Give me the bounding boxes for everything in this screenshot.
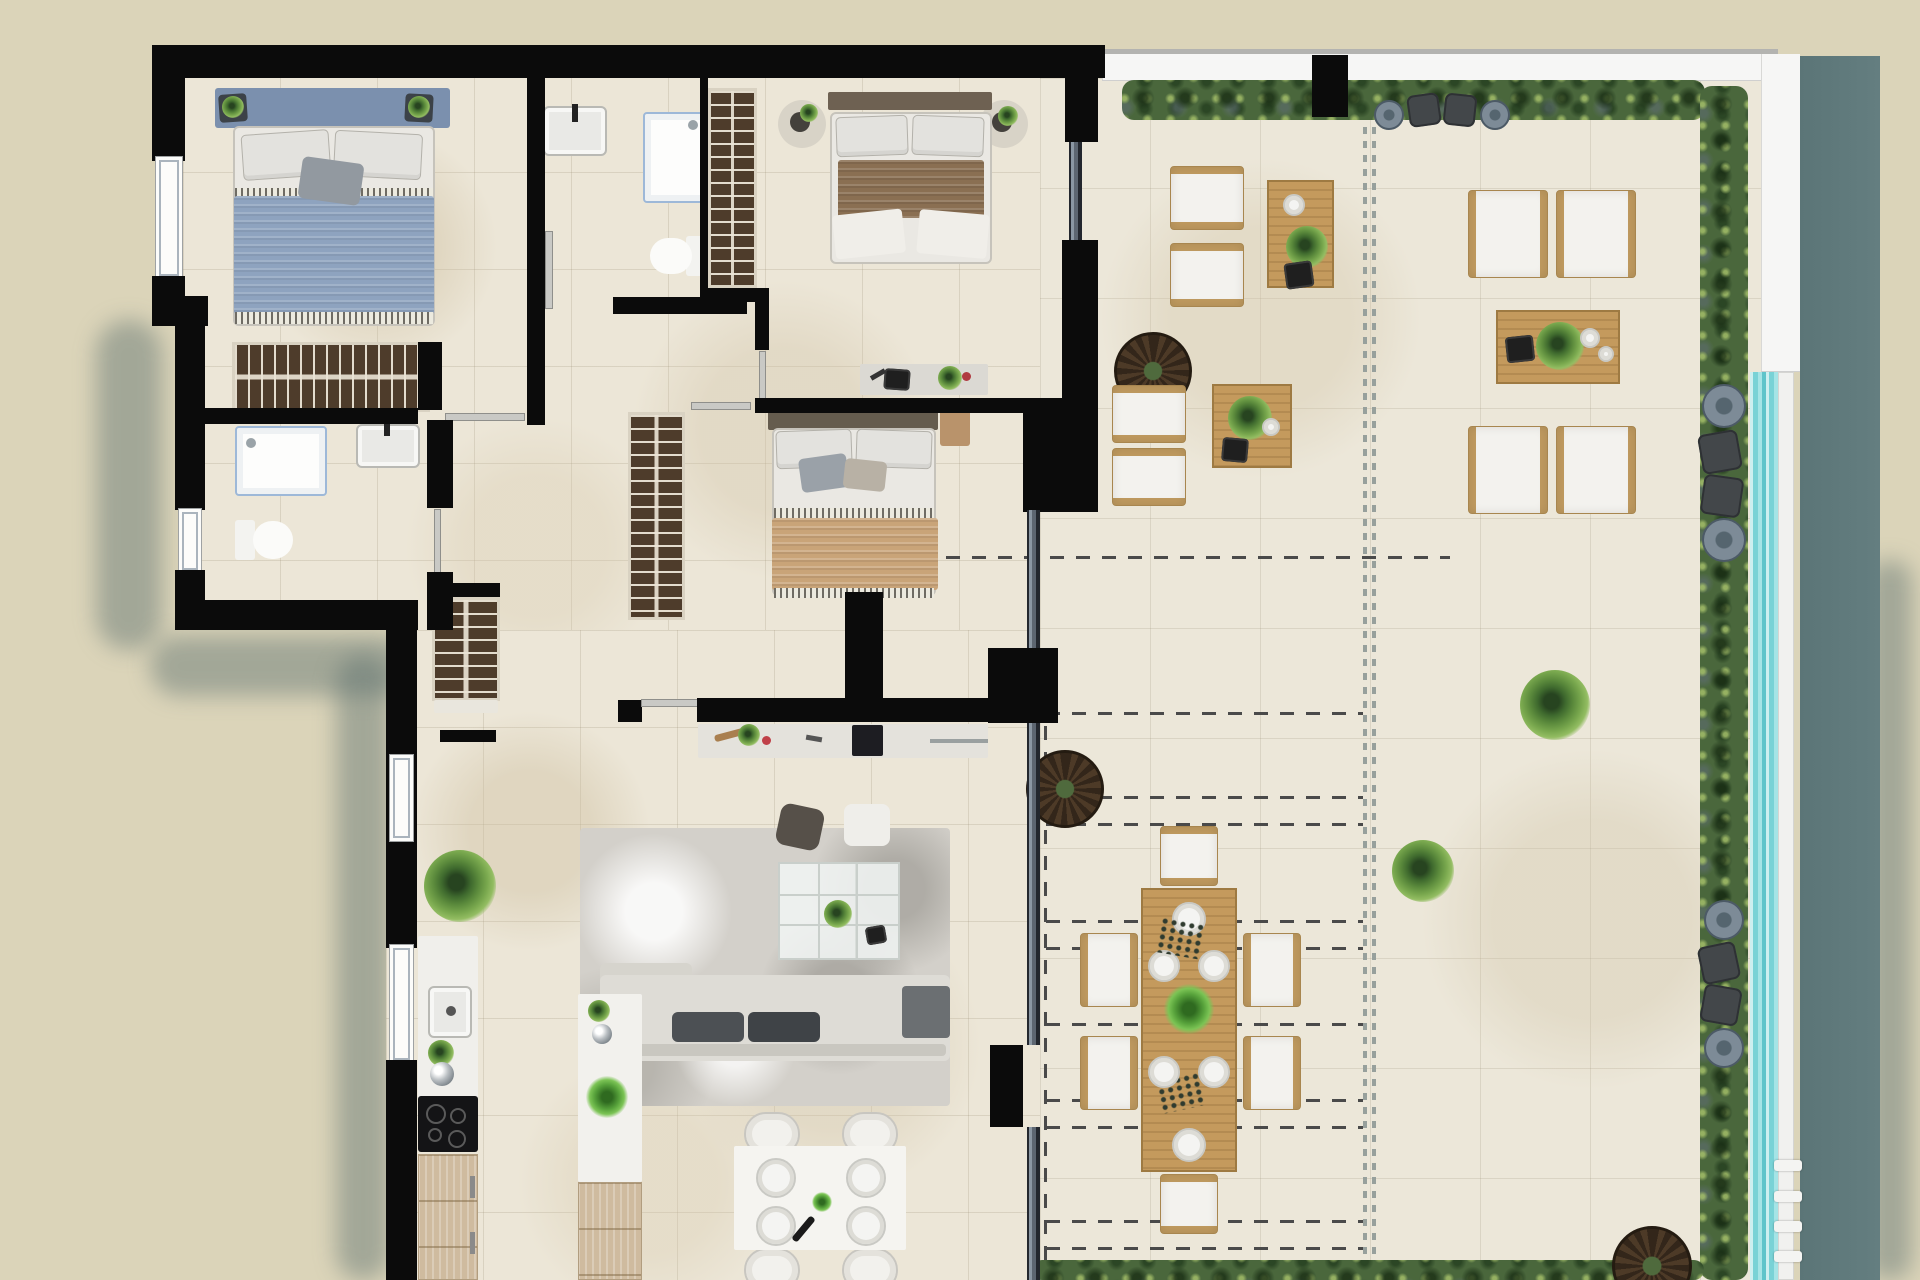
pouf-right-3 [1696,940,1741,985]
terrace-zone-dashed-line [868,556,1450,559]
bathroom1-toilet-bowl [650,238,692,274]
outdoor-dining-chair-bottom [1160,1174,1218,1234]
bed3-nightstand-right [940,410,970,446]
door-leaf-bedroom3 [692,403,750,409]
terrace-armchair-4 [1556,426,1636,514]
pergola-dashed-10 [1046,1247,1363,1250]
window-bedroom1 [155,156,183,280]
dining-plate-4 [846,1206,886,1246]
bed1-bottom-fringe [235,312,433,324]
sofa-cushion-2 [748,1012,820,1042]
living-pouf-white [844,804,890,846]
pool-step-2 [1774,1191,1802,1202]
terrace-plant-1 [1520,670,1590,740]
wall-bedroom2-west [755,288,769,350]
hedge-bottom [1032,1260,1704,1280]
bed2-pillow-right [911,115,984,157]
tv-console-tray [883,368,910,391]
bathroom2-shower-drain [246,438,256,448]
pouf-right-4 [1699,983,1743,1027]
bathroom1-shower-drain [688,120,698,130]
pouf-planter-top-1 [1374,100,1404,130]
table2-cup [1262,418,1280,436]
terrace-armchair-3 [1468,426,1548,514]
pouf-top-2 [1442,92,1477,127]
door-leaf-bedroom1 [446,414,524,420]
building-shadow-left-wall [336,655,390,1280]
dining-plate-2 [846,1158,886,1198]
cabinet-handle-2 [470,1232,475,1254]
kitchen-faucet [446,1006,456,1016]
door-leaf-living [642,700,698,706]
bathroom2-faucet [384,422,390,436]
window-kitchen-2 [389,944,414,1064]
wall-pier-bedroom3 [845,592,883,702]
tv-console-plant [938,366,962,390]
wall-living-north [697,698,988,722]
table3-cup-1 [1580,328,1600,348]
wall-terrace-chunk-b [1062,240,1098,512]
terrace-top-pillar [1312,55,1348,117]
wall-bathroom2-right-upper [427,420,453,508]
terrace-lounge-chair-4 [1112,448,1186,506]
outdoor-dining-chair-left-1 [1080,933,1138,1007]
island-steel-bowl [592,1024,612,1044]
table2-tray [1221,437,1249,463]
table3-cup-2 [1598,346,1614,362]
window-bathroom2 [178,508,202,574]
pouf-right-2 [1699,473,1744,518]
bed3-headboard [768,410,938,430]
wall-terrace-pier-2 [990,1045,1023,1127]
terrace-armchair-1 [1468,190,1548,278]
hob-burner-1 [426,1104,446,1124]
hob-burner-3 [428,1128,442,1142]
pouf-planter-right-2 [1702,518,1746,562]
outdoor-plate-bottom [1172,1128,1206,1162]
wall-top [155,45,1105,78]
terrace-lounge-chair-3 [1112,385,1186,443]
wall-terrace-chunk-a [1065,75,1098,142]
wall-bedroom1-right [527,45,545,425]
outdoor-dining-chair-top [1160,826,1218,886]
floor-plan-canvas [0,0,1920,1280]
door-leaf-bedroom2 [760,352,765,400]
wardrobe-top-center [708,88,757,288]
wall-kitchen-west-lower [386,1060,417,1280]
wall-closet-south-stub [440,730,496,742]
terrace-divider-dotted-a [1363,85,1367,1280]
terrace-lounge-chair-2 [1170,243,1244,307]
wall-bedroom1-left-upper [152,45,185,161]
wall-hall-chunk [418,342,442,410]
kitchen-hob [418,1096,478,1152]
bed2-sheet-fold-left [832,208,906,259]
pouf-planter-right-4 [1704,1028,1744,1068]
bathroom2-toilet-tank [235,520,255,560]
wall-bottom-left [175,600,418,630]
hedge-right [1700,86,1748,1280]
outdoor-herbs-1 [1155,916,1205,959]
wall-bedroom2-bedroom3 [755,398,1068,413]
kitchen-island-wood [578,1182,642,1280]
bed3-blanket [772,518,938,590]
sideboard-rail [930,739,988,743]
bed2-blanket [838,160,984,218]
sideboard-red-deco [762,736,771,745]
hob-burner-4 [448,1130,466,1148]
bathroom1-faucet [572,104,578,122]
wall-wardrobe-left [700,78,708,290]
outdoor-center-plant [1164,984,1214,1034]
outdoor-dining-chair-right-1 [1243,933,1301,1007]
bathroom2-shower [235,426,327,496]
dining-plate-3 [756,1206,796,1246]
kitchen-floor-plant [424,850,496,922]
sliding-door-living-1 [1027,723,1040,1045]
bathroom2-toilet-bowl [253,521,293,559]
bed3-throw-gray [798,453,850,493]
terrace-armchair-2 [1556,190,1636,278]
table3-tray [1505,335,1536,364]
terrace-plant-2 [1392,840,1454,902]
coffee-table-tray [865,924,888,945]
bed2-plant-left [800,104,818,122]
terrace-right-walkway [1761,54,1800,372]
bed2-plant-right [998,106,1018,126]
table3-plant [1536,322,1584,370]
hall-closet-cap [434,700,498,713]
wall-living-north-stub [618,700,642,722]
sofa-cushion-1 [672,1012,744,1042]
wall-bathroom2-right-lower [427,572,453,630]
bed1-blanket [234,196,434,314]
terrace-divider-dotted-b [1372,85,1376,1280]
bed2-headboard [828,92,992,110]
dining-chair-4 [842,1248,898,1280]
outdoor-dining-chair-right-2 [1243,1036,1301,1110]
door-leaf-bathroom1 [546,232,552,308]
bed2-pillow-left [835,115,908,157]
wall-bedroom1-south [205,408,418,424]
wall-wardrobe-south [700,288,757,302]
dining-plate-1 [756,1158,796,1198]
bed1-plant-right [408,96,430,118]
island-lettuce [586,1076,628,1118]
living-pouf-dark [774,802,826,852]
outdoor-plate-right-1 [1198,950,1230,982]
window-kitchen-1 [389,754,414,842]
pouf-planter-right-3 [1704,900,1744,940]
pool-step-4 [1774,1251,1802,1262]
bedroom1-wardrobe [232,342,430,412]
cabinet-handle-1 [470,1176,475,1198]
pouf-top-1 [1406,92,1442,128]
outdoor-dining-chair-left-2 [1080,1036,1138,1110]
tv-console-deco-red [962,372,971,381]
sliding-door-bedroom3 [1027,510,1040,650]
table1-cups [1283,194,1305,216]
wall-bathroom2-left-upper [175,296,205,510]
outdoor-plate-left-2 [1148,1056,1180,1088]
pool-white-kerb [1778,372,1794,1280]
table1-tray [1283,260,1314,290]
wall-terrace-pier-1 [988,648,1058,723]
hob-burner-2 [450,1108,466,1124]
pouf-planter-right-1 [1702,384,1746,428]
pool-step-1 [1774,1160,1802,1171]
sideboard-plant [738,724,760,746]
outdoor-plate-right-2 [1198,1056,1230,1088]
pool-step-3 [1774,1221,1802,1232]
dining-chair-3 [744,1248,800,1280]
terrace-lounge-chair-1 [1170,166,1244,230]
sofa-armrest [902,986,950,1038]
bed3-throw-beige [843,458,888,492]
pergola-dashed-1 [1046,712,1363,715]
coffee-table-plant [824,900,852,928]
kitchen-base-cabinets [418,1154,478,1280]
sliding-door-bedroom2 [1069,142,1082,240]
pouf-right-1 [1697,429,1743,475]
island-plant-small [588,1000,610,1022]
bed1-cushion-gray [297,156,364,206]
door-leaf-bathroom2 [435,510,440,572]
sea-water [1800,56,1880,1280]
bed1-plant-left [222,96,244,118]
sofa-back-band [604,1044,946,1056]
sideboard-tv [852,725,883,756]
pool-edge-strip [1750,372,1778,1280]
building-shadow-left-upper [96,320,162,650]
sliding-door-living-2 [1027,1127,1040,1280]
wall-terrace-chunk-b2 [1023,412,1067,512]
terrace-top-walkway [1102,54,1778,81]
dining-centerpiece [812,1192,832,1212]
bed2-sheet-fold-right [916,209,990,259]
pouf-planter-top-2 [1480,100,1510,130]
kitchen-steel-bowl [430,1062,454,1086]
bedroom3-wardrobe [628,412,685,620]
